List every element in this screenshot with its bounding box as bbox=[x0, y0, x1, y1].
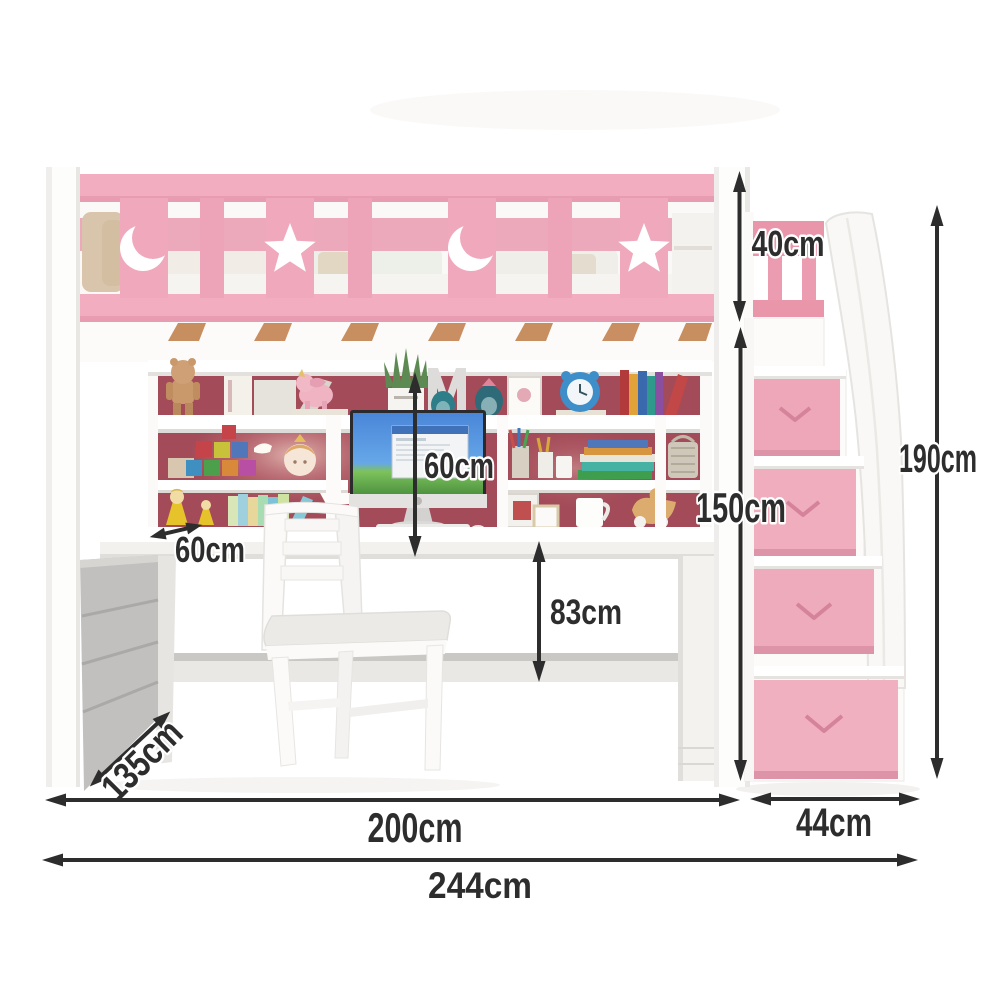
svg-text:200cm: 200cm bbox=[368, 804, 463, 851]
svg-text:150cm: 150cm bbox=[696, 484, 786, 531]
svg-text:60cm: 60cm bbox=[175, 529, 245, 570]
svg-text:44cm: 44cm bbox=[796, 801, 872, 845]
svg-text:190cm: 190cm bbox=[899, 437, 977, 481]
svg-text:40cm: 40cm bbox=[752, 223, 825, 264]
svg-text:83cm: 83cm bbox=[550, 593, 622, 632]
svg-text:60cm: 60cm bbox=[424, 445, 494, 486]
svg-text:244cm: 244cm bbox=[428, 865, 532, 906]
